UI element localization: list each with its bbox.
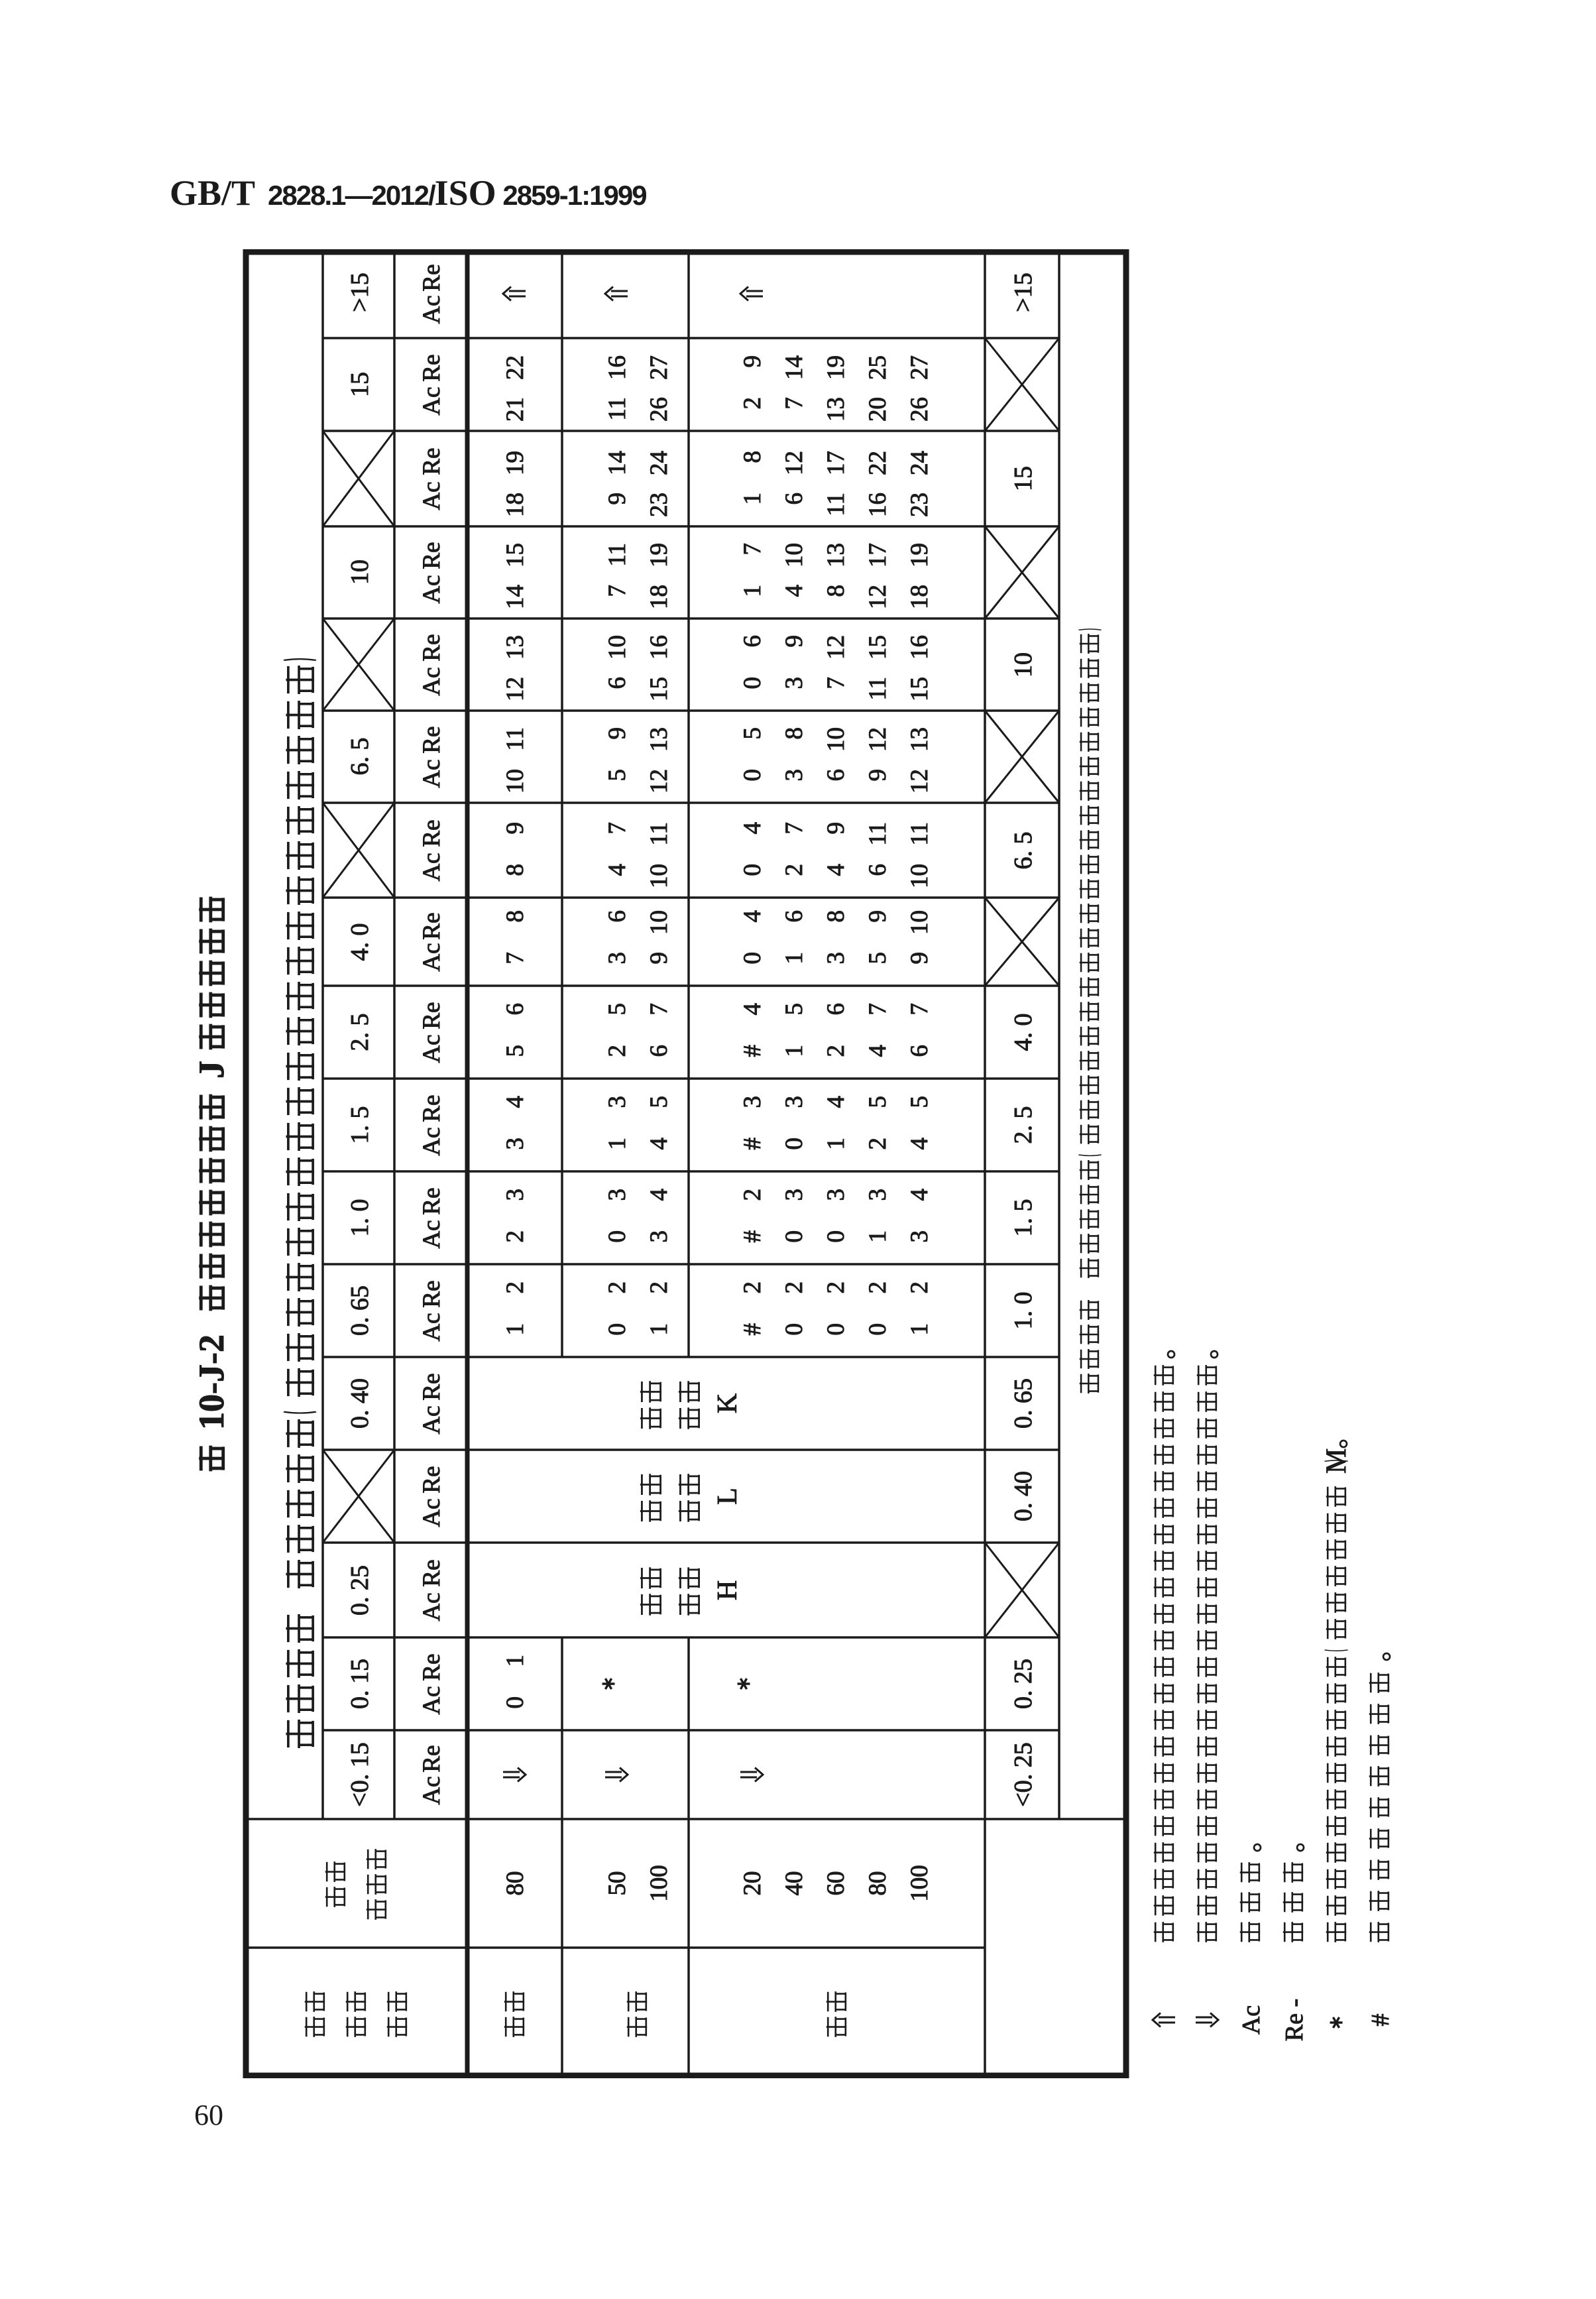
svg-text:9: 9	[502, 822, 529, 835]
svg-text:Ac: Ac	[418, 943, 445, 971]
svg-text:8: 8	[781, 727, 808, 740]
svg-text:4: 4	[604, 864, 631, 876]
svg-text:22: 22	[864, 451, 891, 475]
svg-text:6: 6	[604, 910, 631, 923]
svg-text:16: 16	[864, 493, 891, 517]
svg-text:4. 0: 4. 0	[1009, 1014, 1037, 1051]
svg-text:9: 9	[864, 910, 891, 923]
svg-text:2: 2	[864, 1281, 891, 1294]
svg-text:2: 2	[604, 1045, 631, 1057]
svg-text:19: 19	[646, 543, 673, 567]
svg-text:100: 100	[646, 1865, 673, 1902]
svg-text:7: 7	[502, 952, 529, 965]
svg-text:4: 4	[823, 864, 850, 876]
svg-text:0: 0	[823, 1323, 850, 1336]
svg-text:10: 10	[646, 910, 673, 935]
svg-text:13: 13	[906, 727, 933, 752]
svg-text:0: 0	[739, 677, 766, 689]
svg-text:100: 100	[906, 1865, 933, 1902]
svg-text:13: 13	[502, 635, 529, 660]
svg-text:15: 15	[1009, 466, 1037, 491]
svg-text:15: 15	[864, 635, 891, 660]
svg-text:1: 1	[864, 1230, 891, 1243]
svg-text:#: #	[739, 1323, 766, 1336]
svg-text:0: 0	[781, 1323, 808, 1336]
svg-text:5: 5	[502, 1045, 529, 1057]
svg-text:1: 1	[739, 585, 766, 597]
svg-text:0: 0	[781, 1230, 808, 1243]
svg-text:19: 19	[502, 451, 529, 475]
svg-text:Re: Re	[418, 726, 445, 753]
svg-text:6: 6	[502, 1003, 529, 1016]
svg-text:8: 8	[739, 451, 766, 463]
svg-text:12: 12	[906, 769, 933, 794]
svg-text:8: 8	[823, 910, 850, 923]
svg-text:Ac: Ac	[418, 1686, 445, 1714]
svg-text:3: 3	[604, 952, 631, 965]
svg-text:0: 0	[604, 1230, 631, 1243]
svg-text:6: 6	[781, 910, 808, 923]
svg-text:Re: Re	[418, 1559, 445, 1586]
svg-text:3: 3	[781, 677, 808, 689]
svg-text:5: 5	[906, 1096, 933, 1108]
svg-text:1: 1	[646, 1323, 673, 1336]
svg-text:13: 13	[823, 543, 850, 567]
svg-text:2: 2	[739, 397, 766, 410]
svg-text:11: 11	[502, 727, 529, 751]
svg-text:3: 3	[739, 1096, 766, 1108]
svg-text:2: 2	[906, 1281, 933, 1294]
svg-text:20: 20	[864, 397, 891, 422]
svg-text:14: 14	[502, 585, 529, 609]
svg-text:Ac: Ac	[418, 1313, 445, 1341]
svg-text:10: 10	[906, 910, 933, 935]
svg-text:26: 26	[646, 397, 673, 422]
svg-text:Re: Re	[418, 634, 445, 661]
svg-text:7: 7	[604, 822, 631, 835]
svg-text:3: 3	[604, 1096, 631, 1108]
svg-text:6: 6	[739, 635, 766, 648]
svg-text:9: 9	[604, 727, 631, 740]
svg-text:8: 8	[823, 585, 850, 597]
svg-text:6: 6	[823, 769, 850, 782]
svg-text:5: 5	[604, 769, 631, 782]
svg-text:6: 6	[864, 864, 891, 876]
svg-text:4: 4	[502, 1096, 529, 1108]
svg-text:11: 11	[906, 822, 933, 846]
svg-text:11: 11	[604, 397, 631, 421]
svg-text:5: 5	[604, 1003, 631, 1016]
svg-text:4: 4	[739, 1003, 766, 1016]
svg-text:1. 5: 1. 5	[346, 1106, 374, 1144]
svg-text:10: 10	[823, 727, 850, 752]
svg-text:20: 20	[739, 1871, 766, 1896]
svg-text:Re: Re	[418, 447, 445, 475]
svg-text:21: 21	[502, 397, 529, 422]
svg-text:L: L	[712, 1488, 743, 1505]
svg-text:0: 0	[739, 952, 766, 965]
svg-text:10: 10	[1009, 652, 1037, 678]
svg-text:H: H	[712, 1580, 743, 1600]
svg-text:3: 3	[906, 1230, 933, 1243]
svg-text:2: 2	[823, 1281, 850, 1294]
svg-text:12: 12	[646, 769, 673, 794]
svg-text:13: 13	[823, 397, 850, 422]
svg-text:4: 4	[864, 1045, 891, 1057]
svg-text:0. 15: 0. 15	[346, 1659, 374, 1709]
svg-text:2: 2	[823, 1045, 850, 1057]
svg-text:>15: >15	[346, 272, 374, 312]
svg-text:7: 7	[604, 585, 631, 597]
svg-text:24: 24	[646, 451, 673, 475]
svg-text:10: 10	[646, 864, 673, 888]
svg-text:2: 2	[646, 1281, 673, 1294]
svg-text:2: 2	[739, 1189, 766, 1201]
svg-text:#: #	[739, 1045, 766, 1057]
svg-text:J: J	[192, 1061, 231, 1079]
svg-text:Re: Re	[418, 1280, 445, 1307]
svg-text:23: 23	[646, 493, 673, 517]
svg-text:7: 7	[739, 543, 766, 556]
svg-text:0: 0	[739, 864, 766, 876]
svg-text:14: 14	[604, 451, 631, 475]
svg-text:3: 3	[502, 1189, 529, 1201]
svg-text:1: 1	[781, 1045, 808, 1057]
svg-text:10: 10	[604, 635, 631, 660]
svg-text:2. 5: 2. 5	[1009, 1106, 1037, 1144]
svg-text:12: 12	[864, 727, 891, 752]
svg-text:3: 3	[781, 1096, 808, 1108]
svg-text:11: 11	[864, 677, 891, 701]
svg-text:4: 4	[906, 1138, 933, 1150]
svg-text:8: 8	[502, 864, 529, 876]
svg-text:7: 7	[823, 677, 850, 689]
svg-text:Ac: Ac	[418, 481, 445, 510]
svg-text:<0. 15: <0. 15	[346, 1742, 374, 1806]
svg-text:Re: Re	[418, 912, 445, 939]
svg-text:Ac: Ac	[418, 1405, 445, 1434]
svg-text:6: 6	[823, 1003, 850, 1016]
svg-text:25: 25	[864, 355, 891, 380]
svg-text:9: 9	[781, 635, 808, 648]
svg-text:9: 9	[646, 952, 673, 965]
svg-text:5: 5	[781, 1003, 808, 1016]
svg-text:3: 3	[646, 1230, 673, 1243]
svg-text:9: 9	[864, 769, 891, 782]
svg-text:27: 27	[646, 355, 673, 380]
svg-text:3: 3	[781, 769, 808, 782]
svg-text:Re: Re	[418, 1094, 445, 1122]
svg-text:Re: Re	[418, 1002, 445, 1029]
svg-text:12: 12	[781, 451, 808, 475]
svg-text:9: 9	[906, 952, 933, 965]
svg-text:3: 3	[823, 952, 850, 965]
svg-text:7: 7	[864, 1003, 891, 1016]
svg-text:0: 0	[781, 1138, 808, 1150]
svg-text:18: 18	[906, 585, 933, 609]
svg-text:4: 4	[739, 910, 766, 923]
svg-text:6: 6	[604, 677, 631, 689]
svg-text:15: 15	[646, 677, 673, 701]
svg-text:17: 17	[823, 451, 850, 475]
svg-text:9: 9	[823, 822, 850, 835]
svg-text:1: 1	[502, 1323, 529, 1336]
svg-text:0. 65: 0. 65	[346, 1285, 374, 1336]
svg-text:15: 15	[346, 372, 374, 397]
svg-text:14: 14	[781, 355, 808, 380]
svg-text:Ac: Ac	[418, 386, 445, 415]
svg-text:40: 40	[781, 1871, 808, 1896]
svg-text:Re: Re	[418, 1373, 445, 1400]
svg-text:3: 3	[502, 1138, 529, 1150]
svg-text:1: 1	[502, 1655, 529, 1667]
svg-text:Ac: Ac	[418, 667, 445, 695]
svg-text:9: 9	[739, 355, 766, 368]
svg-text:>15: >15	[1009, 272, 1037, 312]
svg-text:4: 4	[906, 1189, 933, 1201]
svg-text:18: 18	[502, 493, 529, 517]
svg-text:15: 15	[906, 677, 933, 701]
svg-text:12: 12	[864, 585, 891, 609]
svg-text:7: 7	[906, 1003, 933, 1016]
svg-text:1: 1	[906, 1323, 933, 1336]
svg-text:Ac: Ac	[418, 295, 445, 324]
svg-text:16: 16	[646, 635, 673, 660]
svg-text:11: 11	[646, 822, 673, 846]
svg-text:1: 1	[781, 952, 808, 965]
svg-text:#: #	[739, 1138, 766, 1150]
svg-text:Re: Re	[418, 264, 445, 291]
svg-text:24: 24	[906, 451, 933, 475]
svg-text:50: 50	[604, 1871, 631, 1896]
svg-text:8: 8	[502, 910, 529, 923]
svg-text:16: 16	[906, 635, 933, 660]
svg-text:Ac: Ac	[418, 1034, 445, 1063]
svg-text:Ac: Ac	[418, 1776, 445, 1804]
svg-text:4. 0: 4. 0	[346, 923, 374, 961]
svg-text:3: 3	[781, 1189, 808, 1201]
svg-text:0. 25: 0. 25	[346, 1565, 374, 1616]
svg-text:6. 5: 6. 5	[1009, 832, 1037, 870]
svg-text:0. 40: 0. 40	[1009, 1471, 1037, 1521]
svg-text:6: 6	[906, 1045, 933, 1057]
svg-text:10: 10	[781, 543, 808, 567]
svg-text:Re: Re	[418, 819, 445, 847]
svg-text:Ac: Ac	[418, 1127, 445, 1155]
svg-text:4: 4	[646, 1138, 673, 1150]
svg-text:22: 22	[502, 355, 529, 380]
svg-text:16: 16	[604, 355, 631, 380]
svg-text:Ac: Ac	[418, 759, 445, 788]
svg-text:0. 25: 0. 25	[1009, 1659, 1037, 1709]
svg-text:23: 23	[906, 493, 933, 517]
svg-text:4: 4	[781, 585, 808, 597]
svg-text:4: 4	[739, 822, 766, 835]
svg-text:26: 26	[906, 397, 933, 422]
svg-text:10-J-2: 10-J-2	[192, 1334, 231, 1430]
svg-text:18: 18	[646, 585, 673, 609]
svg-text:6. 5: 6. 5	[346, 738, 374, 776]
svg-text:3: 3	[864, 1189, 891, 1201]
svg-text:0: 0	[864, 1323, 891, 1336]
svg-text:10: 10	[346, 560, 374, 585]
svg-text:11: 11	[864, 822, 891, 846]
svg-text:0: 0	[502, 1696, 529, 1709]
svg-text:27: 27	[906, 355, 933, 380]
svg-text:4: 4	[823, 1096, 850, 1108]
svg-text:6: 6	[781, 493, 808, 505]
svg-text:Ac: Ac	[418, 1220, 445, 1248]
svg-text:Re -: Re -	[1281, 1999, 1308, 2041]
svg-text:Ac: Ac	[418, 1592, 445, 1621]
svg-text:10: 10	[502, 769, 529, 794]
svg-text:19: 19	[823, 355, 850, 380]
svg-text:0. 40: 0. 40	[346, 1378, 374, 1429]
svg-text:13: 13	[646, 727, 673, 752]
svg-text:80: 80	[864, 1871, 891, 1896]
svg-text:12: 12	[502, 677, 529, 701]
svg-text:2: 2	[604, 1281, 631, 1294]
svg-text:2: 2	[781, 1281, 808, 1294]
svg-text:1. 5: 1. 5	[1009, 1199, 1037, 1237]
svg-text:3: 3	[823, 1189, 850, 1201]
svg-text:4: 4	[646, 1189, 673, 1201]
svg-text:#: #	[1367, 2014, 1395, 2027]
svg-text:Ac: Ac	[418, 575, 445, 603]
svg-text:7: 7	[646, 1003, 673, 1016]
svg-text:2: 2	[502, 1281, 529, 1294]
svg-text:1: 1	[604, 1138, 631, 1150]
svg-text:0. 65: 0. 65	[1009, 1378, 1037, 1429]
svg-text:11: 11	[823, 493, 850, 516]
svg-text:12: 12	[823, 635, 850, 660]
svg-text:7: 7	[781, 397, 808, 410]
svg-text:11: 11	[604, 543, 631, 567]
svg-text:1. 0: 1. 0	[1009, 1292, 1037, 1330]
svg-text:1: 1	[823, 1138, 850, 1150]
svg-text:0: 0	[823, 1230, 850, 1243]
svg-text:10: 10	[906, 864, 933, 888]
svg-text:9: 9	[604, 493, 631, 505]
svg-text:#: #	[739, 1230, 766, 1243]
svg-text:2: 2	[781, 864, 808, 876]
svg-text:60: 60	[823, 1871, 850, 1896]
svg-text:Re: Re	[418, 542, 445, 569]
svg-text:Re: Re	[418, 1653, 445, 1680]
svg-text:Re: Re	[418, 354, 445, 381]
svg-text:Ac: Ac	[418, 853, 445, 881]
svg-text:1: 1	[739, 493, 766, 505]
svg-text:2. 5: 2. 5	[346, 1014, 374, 1051]
svg-text:Re: Re	[418, 1187, 445, 1214]
svg-text:2: 2	[864, 1138, 891, 1150]
svg-text:2: 2	[739, 1281, 766, 1294]
svg-text:5: 5	[646, 1096, 673, 1108]
svg-text:5: 5	[864, 952, 891, 965]
svg-text:5: 5	[739, 727, 766, 740]
svg-text:17: 17	[864, 543, 891, 567]
svg-text:Ac: Ac	[1237, 2005, 1265, 2034]
svg-text:5: 5	[864, 1096, 891, 1108]
svg-text:<0. 25: <0. 25	[1009, 1742, 1037, 1806]
svg-text:Re: Re	[418, 1466, 445, 1493]
svg-text:K: K	[712, 1393, 743, 1413]
svg-text:Ac: Ac	[418, 1498, 445, 1527]
svg-text:15: 15	[502, 543, 529, 567]
svg-text:7: 7	[781, 822, 808, 835]
svg-text:6: 6	[646, 1045, 673, 1057]
svg-text:0: 0	[739, 769, 766, 782]
svg-text:80: 80	[502, 1871, 529, 1896]
svg-text:1. 0: 1. 0	[346, 1199, 374, 1237]
svg-text:Re: Re	[418, 1745, 445, 1772]
svg-text:2: 2	[502, 1230, 529, 1243]
svg-text:0: 0	[604, 1323, 631, 1336]
svg-text:19: 19	[906, 543, 933, 567]
svg-text:3: 3	[604, 1189, 631, 1201]
